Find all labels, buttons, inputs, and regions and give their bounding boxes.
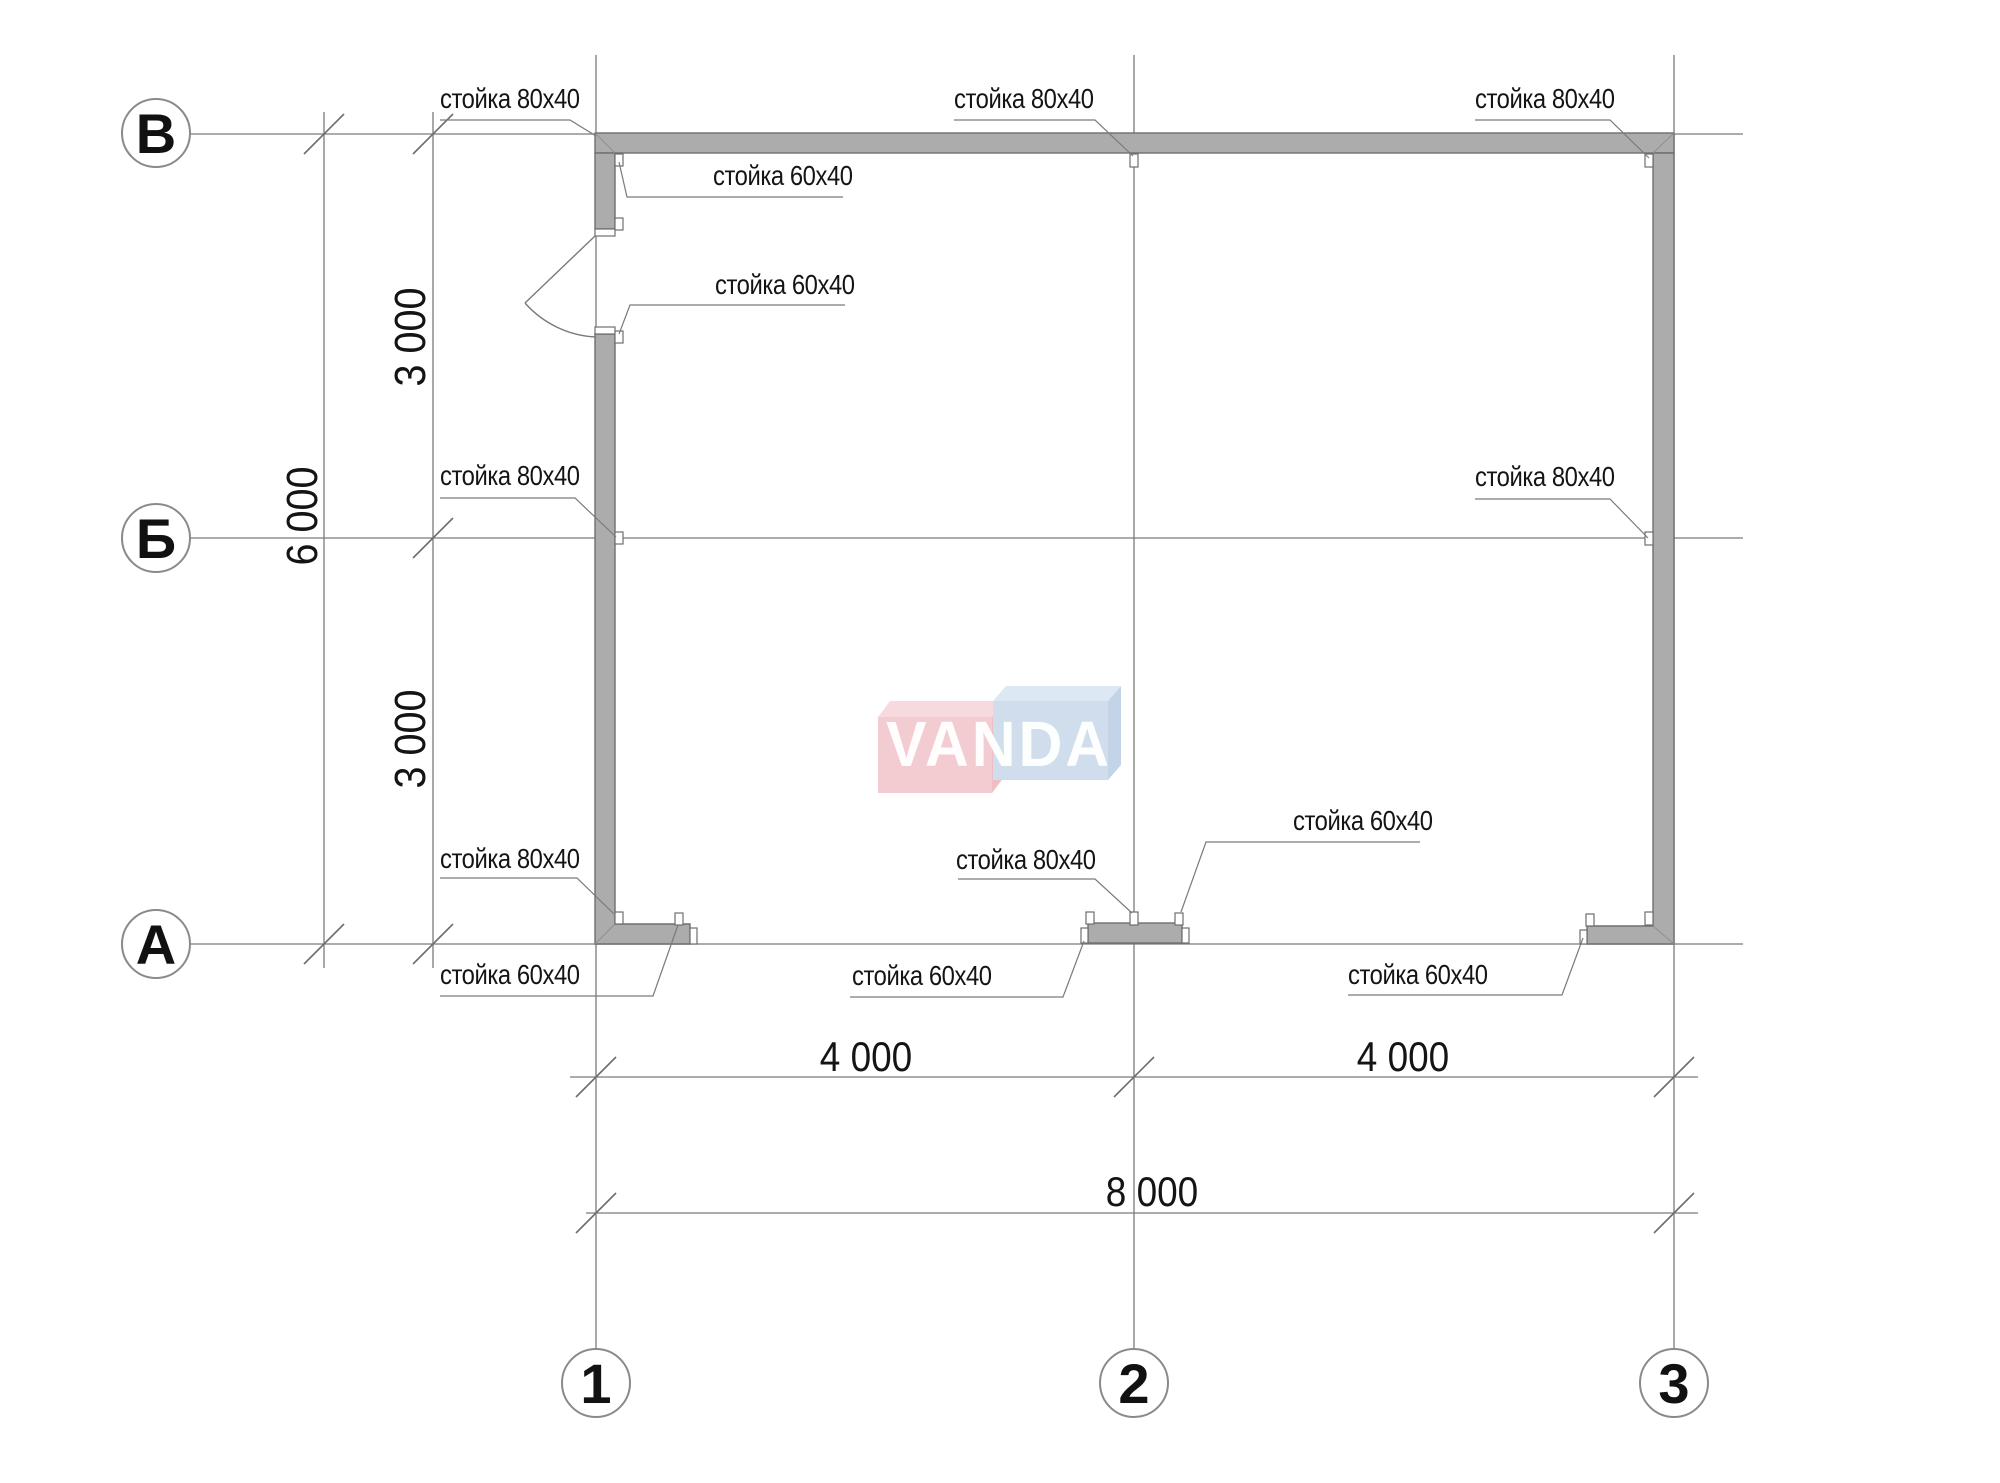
dim-text-6000: 6 000	[280, 466, 326, 565]
dim-text-8000: 8 000	[1106, 1170, 1198, 1214]
stud-80x40-right-a	[1645, 912, 1653, 925]
stud-80x40-left-b	[615, 532, 623, 544]
cap	[1182, 928, 1189, 943]
cap	[690, 928, 697, 944]
dim-text-4000-left: 4 000	[820, 1035, 912, 1079]
stud-label-bottom-right-60: стойка 60x40	[1348, 960, 1488, 990]
wall-left-upper	[595, 153, 615, 229]
stud-label-top-right: стойка 80x40	[1475, 84, 1615, 114]
stud-door-top	[615, 218, 623, 230]
dim-text-3000-lower: 3 000	[388, 689, 434, 788]
leader-bl80	[440, 878, 614, 914]
leader-bm80	[958, 879, 1132, 913]
axis-bubble-col-3-label: 3	[1658, 1351, 1689, 1416]
axis-bubble-col-3: 3	[1639, 1348, 1709, 1418]
axis-bubble-col-2: 2	[1099, 1348, 1169, 1418]
door-top-cap	[595, 229, 615, 236]
stud-label-left-axis-b: стойка 80x40	[440, 461, 580, 491]
stud-80x40-right-b	[1645, 532, 1653, 545]
leader-rb80	[1475, 499, 1648, 538]
stud-label-bottom-left-60: стойка 60x40	[440, 960, 580, 990]
stud-label-door-upper: стойка 60x40	[713, 161, 853, 191]
stud-60x40-bottom-left-end	[675, 913, 683, 925]
wall-left-lower	[595, 334, 690, 944]
stud-label-right-axis-b: стойка 80x40	[1475, 462, 1615, 492]
wall-right	[1587, 153, 1674, 944]
wall-top	[595, 133, 1674, 153]
axis-bubble-col-2-label: 2	[1118, 1351, 1149, 1416]
stud-80x40-left-a	[615, 912, 623, 924]
stud-label-bottom-middle-60-bottom: стойка 60x40	[852, 961, 992, 991]
watermark-blue-top	[993, 686, 1121, 701]
axis-bubble-row-v-label: В	[136, 101, 176, 166]
cap	[1081, 928, 1088, 943]
watermark-logo-text: VANDA	[886, 707, 1112, 781]
door-leaf	[525, 236, 595, 303]
stud-label-top-middle: стойка 80x40	[954, 84, 1094, 114]
door-bottom-cap	[595, 327, 615, 334]
axis-bubble-row-b-label: Б	[136, 506, 176, 571]
axis-bubble-row-a-label: А	[136, 912, 176, 977]
axis-bubble-row-b: Б	[121, 503, 191, 573]
axis-bubble-col-1-label: 1	[580, 1351, 611, 1416]
axis-bubble-row-v: В	[121, 98, 191, 168]
axis-bubble-row-a: А	[121, 909, 191, 979]
stud-60x40-mid-right	[1175, 913, 1183, 925]
stud-label-bottom-middle-80: стойка 80x40	[956, 845, 1096, 875]
wall-bottom-middle	[1088, 923, 1182, 943]
stud-80x40-top-middle	[1130, 154, 1138, 167]
dim-text-4000-right: 4 000	[1357, 1035, 1449, 1079]
stud-label-bottom-left: стойка 80x40	[440, 844, 580, 874]
opening-caps	[595, 229, 1587, 944]
door-swing	[525, 236, 596, 337]
stud-label-door-lower: стойка 60x40	[715, 270, 855, 300]
stud-60x40-bottom-right-end	[1586, 914, 1594, 926]
door-arc	[525, 303, 596, 337]
stud-label-bottom-middle-60-top: стойка 60x40	[1293, 806, 1433, 836]
stud-label-top-left: стойка 80x40	[440, 84, 580, 114]
leader-door60b	[619, 305, 845, 334]
floor-plan-canvas: VANDA стойка 80x40 стойка 80x40 стойка 8…	[0, 0, 2000, 1483]
dimension-ticks	[304, 114, 1694, 1233]
leader-bm60t	[1181, 842, 1420, 912]
dim-text-3000-upper: 3 000	[388, 287, 434, 386]
axis-bubble-col-1: 1	[561, 1348, 631, 1418]
stud-80x40-mid-center	[1130, 912, 1138, 925]
leader-lb80	[440, 498, 616, 537]
dimension-lines	[324, 112, 1698, 1213]
stud-60x40-mid-left	[1086, 912, 1094, 924]
